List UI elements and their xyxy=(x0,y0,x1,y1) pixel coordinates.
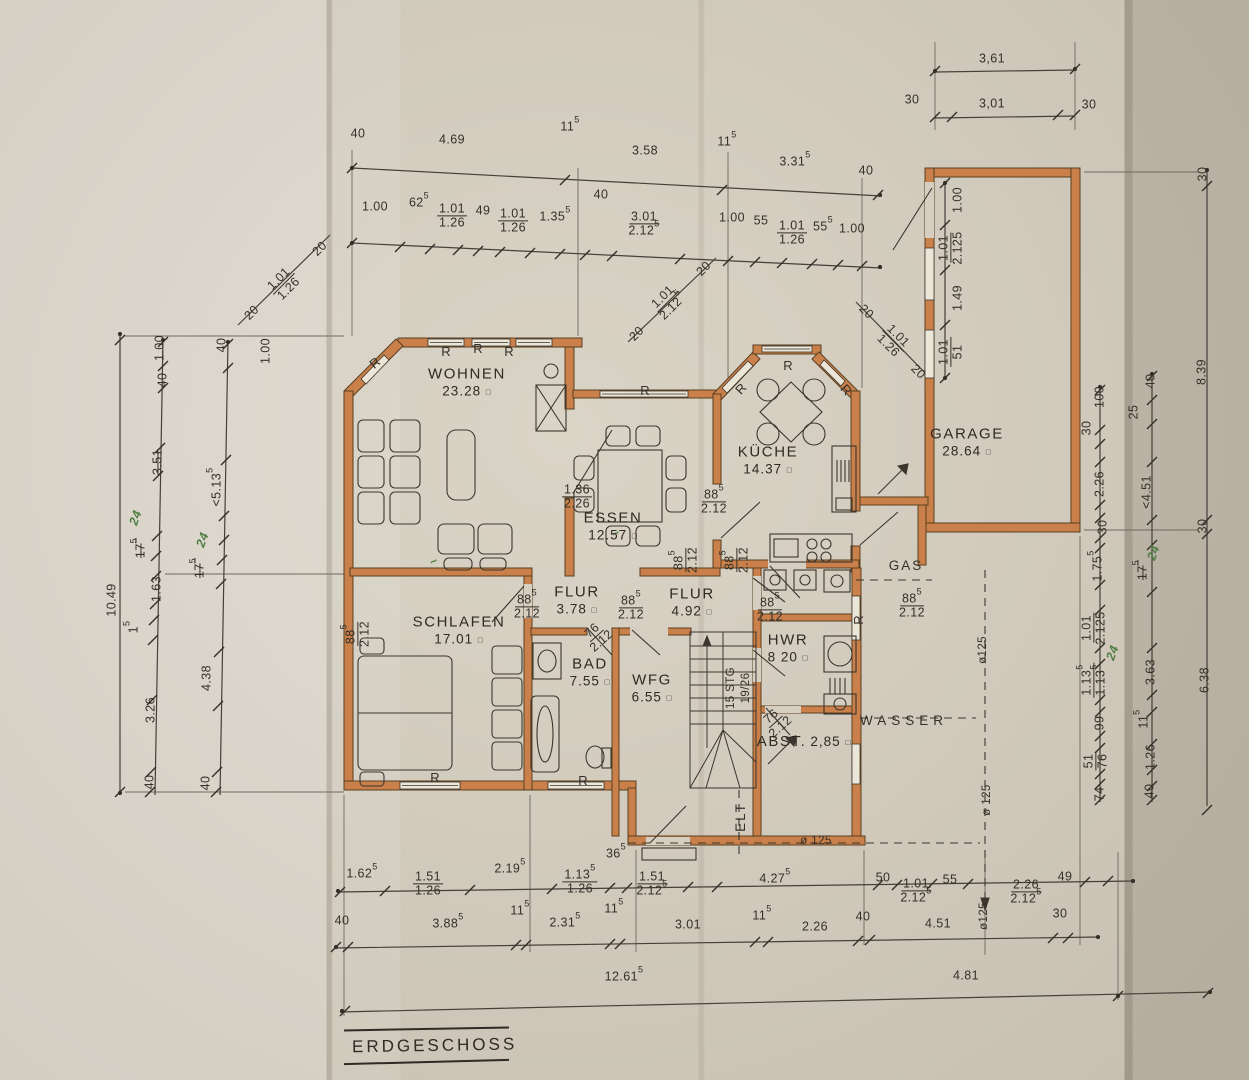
dim-label: 10.49 xyxy=(105,583,118,616)
dim-label: 19/26 xyxy=(740,673,752,704)
dim-label: 55 xyxy=(754,214,769,227)
door-dim-label: 1.1351.135 xyxy=(1080,662,1107,697)
dim-label: 30 xyxy=(1082,98,1097,111)
room-label: HWR8 20 □ xyxy=(768,632,809,665)
dim-label: ø125 xyxy=(977,636,989,664)
hand-annotation: 24 xyxy=(1104,644,1121,662)
dim-label: 74 xyxy=(1093,787,1106,802)
dim-label: 30 xyxy=(905,93,920,106)
dim-label: 25 xyxy=(1127,405,1140,420)
dim-label: 115 xyxy=(604,902,623,915)
dim-label: 4.51 xyxy=(925,917,951,930)
dim-label: ELT xyxy=(734,802,748,832)
dim-label: 30 xyxy=(1196,519,1209,534)
dim-label: 40 xyxy=(859,164,874,177)
dim-label: 175 xyxy=(1136,560,1149,580)
dim-label: 49 xyxy=(1058,870,1073,883)
dim-label: ø 125 xyxy=(981,784,993,815)
dim-label: 30 xyxy=(1053,907,1068,920)
hand-annotation: 24 xyxy=(127,509,144,527)
door-dim-label: 8852.12 xyxy=(672,547,699,573)
drawing-title: ERDGESCHOSS xyxy=(344,1028,509,1063)
door-dim-label: 8852.12 xyxy=(344,621,371,647)
dim-label: 1.755 xyxy=(1091,550,1104,581)
dim-label: 1.355 xyxy=(539,210,570,223)
window-marker: R xyxy=(783,359,792,373)
dimension-labels-layer: 3,61303,0130404.691153.581153.315401.006… xyxy=(0,0,1249,1080)
dim-label: 1.00 xyxy=(839,222,865,235)
dim-label: 3.01 xyxy=(675,918,701,931)
window-marker: R xyxy=(473,342,482,356)
dim-label: 2.315 xyxy=(549,916,580,929)
door-dim-label: 8852.12 xyxy=(723,547,750,573)
door-dim-label: 1.011.26 xyxy=(264,264,304,304)
door-dim-label: 1.511.26 xyxy=(413,870,443,897)
dim-label: <4.51 xyxy=(1140,475,1153,509)
window-marker: R xyxy=(430,771,439,785)
dim-label: 3.885 xyxy=(432,917,463,930)
dim-label: 1.26 xyxy=(1144,744,1157,770)
hand-annotation: 24 xyxy=(194,531,211,549)
dim-label: 40 xyxy=(1143,784,1156,799)
dim-label: 3.58 xyxy=(632,144,658,157)
room-label: FLUR4.92 □ xyxy=(669,586,715,619)
room-label: KÜCHE14.37 □ xyxy=(738,444,799,477)
dim-label: 1.63 xyxy=(150,576,163,602)
dim-label: 49 xyxy=(476,204,491,217)
dim-label: GAS xyxy=(889,559,924,573)
door-dim-label: 8852.12 xyxy=(618,594,644,621)
dim-label: 40 xyxy=(215,338,228,353)
door-dim-label: 1.512.125 xyxy=(636,870,667,897)
dim-label: 99 xyxy=(1093,716,1106,731)
door-dim-label: 1.012.125 xyxy=(1080,611,1107,644)
dim-label: 20 xyxy=(242,303,262,323)
dim-label: 2.195 xyxy=(494,862,525,875)
dim-label: 30 xyxy=(1080,421,1093,436)
dim-label: 4.81 xyxy=(953,969,979,982)
dim-label: 30 xyxy=(1096,520,1109,535)
dim-label: 15 STG xyxy=(725,667,737,709)
room-label: GARAGE28.64 □ xyxy=(930,426,1004,459)
door-dim-label: 5176 xyxy=(1082,752,1109,771)
dim-label: 175 xyxy=(193,558,206,578)
door-dim-label: 1.011.26 xyxy=(873,321,913,361)
door-dim-label: 3.012.125 xyxy=(628,210,659,237)
dim-label: 40 xyxy=(143,775,156,790)
scanned-floor-plan: { "title": {"text": "ERDGESCHOSS"}, "col… xyxy=(0,0,1249,1080)
door-dim-label: 8852.12 xyxy=(899,592,925,619)
window-marker: R xyxy=(441,345,450,359)
dim-label: WASSER xyxy=(860,714,948,728)
dim-label: 115 xyxy=(1137,709,1150,728)
dim-label: 115 xyxy=(560,120,579,133)
window-marker: R xyxy=(733,381,749,397)
dim-label: 50 xyxy=(876,871,891,884)
dim-label: 20 xyxy=(908,362,928,382)
room-label: ESSEN12.57 □ xyxy=(584,510,643,543)
dim-label: 1.00 xyxy=(362,200,388,213)
door-dim-label: 762.12 xyxy=(578,617,616,655)
door-dim-label: 1.012.125 xyxy=(900,877,931,904)
room-label: FLUR3.78 □ xyxy=(554,584,600,617)
dim-label: 8.39 xyxy=(1195,359,1208,385)
dim-label: 115 xyxy=(510,904,529,917)
dim-label: 20 xyxy=(627,324,647,344)
dim-label: 15 xyxy=(127,621,140,634)
dim-label: 1.625 xyxy=(346,867,377,880)
dim-label: 40 xyxy=(335,914,350,927)
door-dim-label: 1.0151 xyxy=(937,337,964,367)
dim-label: 3,01 xyxy=(979,97,1005,110)
room-label: WOHNEN23.28 □ xyxy=(428,366,506,399)
dim-label: 30 xyxy=(1196,167,1209,182)
door-dim-label: 1.362.26 xyxy=(562,483,592,510)
dim-label: 2.26 xyxy=(1093,471,1106,497)
door-dim-label: 1.011.26 xyxy=(498,207,528,234)
dim-label: 4.275 xyxy=(759,872,790,885)
dim-label: 12.615 xyxy=(605,970,644,983)
dim-label: <5.135 xyxy=(210,467,223,506)
window-marker: R xyxy=(838,382,854,398)
dim-label: 1.00 xyxy=(259,338,272,364)
dim-label: 365 xyxy=(606,847,626,860)
dim-label: 1.00 xyxy=(153,335,166,361)
door-dim-label: 1.1351.26 xyxy=(562,868,597,895)
dim-label: 4.69 xyxy=(439,133,465,146)
door-dim-label: 8852.12 xyxy=(514,593,540,620)
dim-label: 4.38 xyxy=(200,665,213,691)
dim-label: 55 xyxy=(943,873,958,886)
dim-label: 40 xyxy=(156,373,169,388)
dim-label: 3,61 xyxy=(979,52,1005,65)
dim-label: 625 xyxy=(409,196,429,209)
dim-label: 100 xyxy=(1093,386,1106,408)
dim-label: ø125 xyxy=(978,902,990,930)
door-dim-label: 8852.12 xyxy=(757,596,783,623)
dim-label: 40 xyxy=(856,910,871,923)
room-label: ABST.2,85 □ xyxy=(757,733,856,751)
dim-label: 20 xyxy=(856,302,876,322)
title-text: ERDGESCHOSS xyxy=(344,1029,510,1063)
dim-label: ø 125 xyxy=(800,835,831,847)
dim-label: 1.49 xyxy=(951,285,964,311)
door-dim-label: 2.262.125 xyxy=(1010,878,1041,905)
window-marker: R xyxy=(852,615,866,624)
hand-annotation: ~ xyxy=(427,554,440,569)
room-label: SCHLAFEN17.01 □ xyxy=(413,614,506,647)
window-marker: R xyxy=(640,384,649,398)
dim-label: 2.26 xyxy=(802,920,828,933)
room-label: WFG6.55 □ xyxy=(632,672,673,705)
window-marker: R xyxy=(367,355,383,371)
dim-label: 6.38 xyxy=(1198,667,1211,693)
dim-label: 40 xyxy=(594,188,609,201)
door-dim-label: 1.011.26 xyxy=(437,202,467,229)
window-marker: R xyxy=(578,774,587,788)
door-dim-label: 8852.12 xyxy=(701,488,727,515)
dim-label: 115 xyxy=(717,135,736,148)
room-label: BAD7.55 □ xyxy=(570,656,611,689)
dim-label: 1.00 xyxy=(951,187,964,213)
dim-label: 40 xyxy=(199,776,212,791)
dim-label: 20 xyxy=(694,259,714,279)
door-dim-label: 1.012.125 xyxy=(937,231,964,264)
door-dim-label: 1.012.125 xyxy=(647,281,688,322)
dim-label: 3.315 xyxy=(779,155,810,168)
dim-label: 3.26 xyxy=(144,697,157,723)
dim-label: 3.51 xyxy=(151,449,164,475)
dim-label: 40 xyxy=(351,127,366,140)
dim-label: 20 xyxy=(310,239,330,259)
door-dim-label: 1.011.26 xyxy=(777,219,807,246)
dim-label: 3.63 xyxy=(1144,659,1157,685)
dim-label: 555 xyxy=(813,220,833,233)
dim-label: 40 xyxy=(1144,374,1157,389)
dim-label: 175 xyxy=(134,538,147,558)
window-marker: R xyxy=(504,345,513,359)
dim-label: 115 xyxy=(752,909,771,922)
dim-label: 1.00 xyxy=(719,211,745,224)
